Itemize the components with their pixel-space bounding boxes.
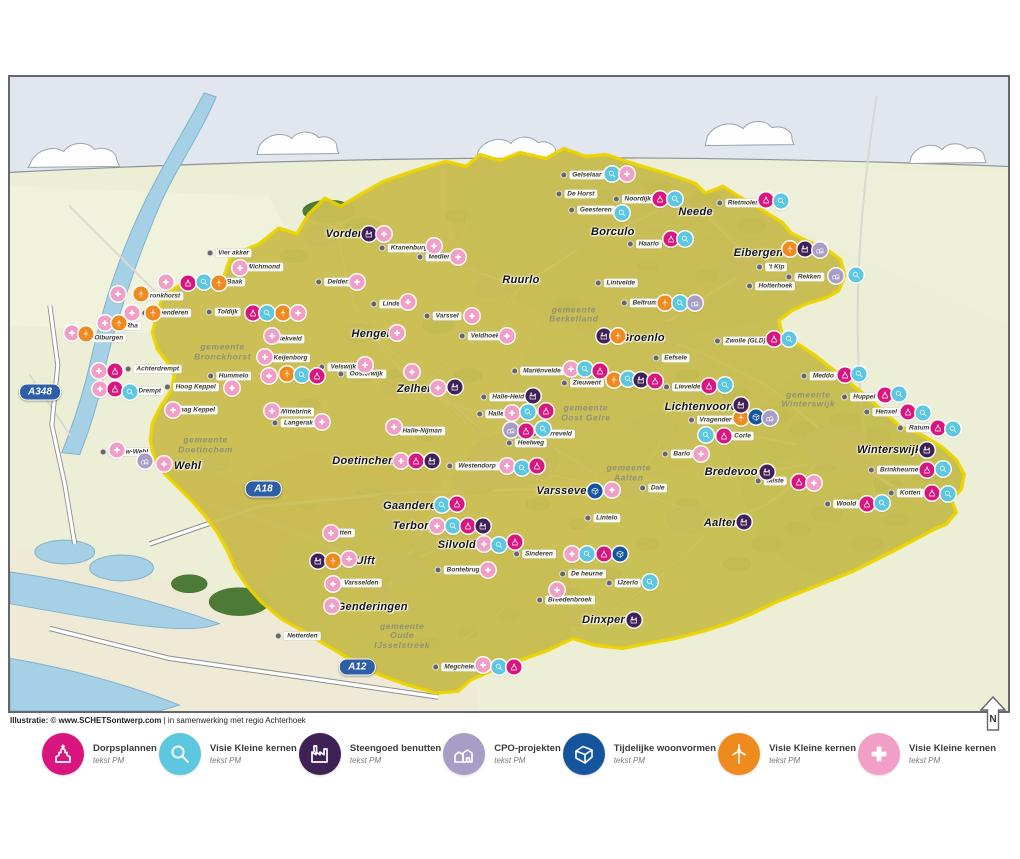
project-marker-church <box>920 463 935 478</box>
town-label-zwolle-gld: Zwolle (GLD) <box>722 336 768 345</box>
turbine-icon <box>329 556 338 565</box>
cross-icon <box>397 457 406 466</box>
cross-icon <box>328 601 337 610</box>
factory-icon <box>739 518 748 527</box>
town-label-keijenborg: Keijenborg <box>270 354 310 363</box>
container-icon <box>590 487 599 496</box>
legend-text: Visie Kleine kernentekst PM <box>210 743 297 765</box>
town-label-rietmolen: Rietmolen <box>725 198 762 207</box>
project-marker-cross <box>350 274 365 289</box>
town-label-baak: Baak <box>224 277 246 286</box>
magnifier-icon <box>438 500 447 509</box>
cross-icon <box>696 450 705 459</box>
town-label-breedenbroek: Breedenbroek <box>545 596 595 605</box>
project-marker-cross <box>431 381 446 396</box>
project-marker-magnifier <box>492 537 507 552</box>
project-marker-factory <box>736 515 751 530</box>
project-marker-turbine <box>145 305 160 320</box>
gemeente-label-gemeente-bronckhorst: gemeenteBronckhorst <box>194 343 251 362</box>
cross-icon <box>507 409 516 418</box>
project-marker-church <box>663 232 678 247</box>
turbine-icon <box>660 298 669 307</box>
cross-icon <box>100 318 109 327</box>
magnifier-icon <box>495 662 504 671</box>
city-label-neede: Neede <box>678 206 713 218</box>
project-marker-cross <box>807 476 822 491</box>
project-marker-turbine <box>326 553 341 568</box>
city-label-ulft: Ulft <box>356 555 376 567</box>
church-icon <box>248 308 257 317</box>
church-icon <box>412 456 421 465</box>
project-marker-cross <box>500 328 515 343</box>
magnifier-icon <box>720 381 729 390</box>
project-marker-cross <box>504 406 519 421</box>
project-marker-cross <box>693 447 708 462</box>
magnifier-icon <box>582 549 591 558</box>
magnifier-icon <box>623 375 632 384</box>
factory-icon <box>923 445 932 454</box>
project-marker-church <box>759 192 774 207</box>
project-marker-church <box>245 305 260 320</box>
cross-icon <box>127 308 136 317</box>
church-icon <box>521 426 530 435</box>
gemeente-label-gemeente-oude-ijsselstreek: gemeenteOudeIJsselstreek <box>374 621 430 650</box>
project-marker-magnifier <box>849 268 864 283</box>
factory-icon <box>479 521 488 530</box>
legend-sub: tekst PM <box>494 756 561 765</box>
highway-shield-a12: A12 <box>339 659 375 676</box>
magnifier-icon <box>680 234 689 243</box>
legend-magnifier-badge <box>159 733 201 775</box>
factory-icon <box>528 391 537 400</box>
project-marker-church <box>647 374 662 389</box>
project-marker-factory <box>733 397 748 412</box>
city-label-wehl: Wehl <box>174 460 201 472</box>
project-marker-turbine <box>783 242 798 257</box>
project-marker-magnifier <box>604 167 619 182</box>
town-label-henxel: Henxel <box>873 407 900 416</box>
project-marker-cross <box>315 414 330 429</box>
project-marker-magnifier <box>579 546 594 561</box>
town-label-t-kip: 't Kip <box>765 263 787 272</box>
magnifier-icon <box>517 463 526 472</box>
turbine-icon <box>114 318 123 327</box>
legend-factory-badge <box>299 733 341 775</box>
legend-text: CPO-projektentekst PM <box>494 743 561 765</box>
project-marker-cross <box>405 365 420 380</box>
houses-icon <box>832 272 841 281</box>
project-marker-houses <box>763 411 778 426</box>
north-arrow: N <box>980 696 1006 732</box>
church-icon <box>719 431 728 440</box>
cross-icon <box>390 422 399 431</box>
project-marker-factory <box>425 453 440 468</box>
project-marker-cross <box>563 362 578 377</box>
turbine-icon <box>736 414 745 423</box>
project-marker-magnifier <box>642 575 657 590</box>
project-marker-church <box>180 276 195 291</box>
project-marker-magnifier <box>717 378 732 393</box>
project-marker-church <box>792 475 807 490</box>
church-icon <box>453 499 462 508</box>
legend-label: Tijdelijke woonvormen <box>614 743 716 754</box>
town-label-westendorp: Westendorp <box>455 462 498 471</box>
project-marker-turbine <box>657 295 672 310</box>
magnifier-icon <box>701 430 710 439</box>
project-marker-container <box>587 484 602 499</box>
town-label-hummelo: Hummelo <box>216 372 252 381</box>
project-marker-church <box>860 496 875 511</box>
cross-icon <box>552 585 561 594</box>
project-marker-church <box>878 388 893 403</box>
project-marker-cross <box>358 358 373 373</box>
project-marker-turbine <box>211 276 226 291</box>
project-marker-factory <box>626 612 641 627</box>
city-label-vorden: Vorden <box>326 228 365 240</box>
church-icon <box>655 194 664 203</box>
gemeente-label-gemeente-berkelland: gemeenteBerkelland <box>549 305 598 324</box>
legend-label: Visie Kleine kernen <box>909 743 996 754</box>
town-label-halle-heide: Halle-Heide <box>489 393 530 402</box>
town-label-gelselaar: Gelselaar <box>569 171 604 180</box>
legend-sub: tekst PM <box>909 756 996 765</box>
church-icon <box>541 407 550 416</box>
cross-icon <box>607 486 616 495</box>
project-marker-magnifier <box>435 497 450 512</box>
magnifier-icon <box>168 742 192 766</box>
magnifier-icon <box>580 365 589 374</box>
gemeente-label-gemeente-doetinchem: gemeenteDoetinchem <box>178 436 233 455</box>
project-marker-magnifier <box>260 305 275 320</box>
cross-icon <box>622 170 631 179</box>
project-marker-magnifier <box>774 193 789 208</box>
church-icon <box>532 462 541 471</box>
project-marker-cross <box>326 577 341 592</box>
project-marker-church <box>596 546 611 561</box>
highway-shield-a18: A18 <box>245 481 281 498</box>
project-marker-magnifier <box>941 487 956 502</box>
magnifier-icon <box>617 208 626 217</box>
legend-item-steengoed-benutten-2: Steengoed benuttentekst PM <box>299 733 441 775</box>
legend-item-visie-kleine-kernen-6: Visie Kleine kernentekst PM <box>858 733 996 775</box>
map-frame: gemeenteBronckhorstgemeenteDoetinchemgem… <box>8 75 1010 713</box>
city-label-ruurlo: Ruurlo <box>502 274 539 286</box>
church-icon <box>795 478 804 487</box>
town-label-meddo: Meddo <box>810 372 837 381</box>
town-label-corle: Corle <box>731 431 754 440</box>
project-marker-cross <box>604 483 619 498</box>
legend-text: Dorpsplannentekst PM <box>93 743 157 765</box>
town-label-ijzerlo: IJzerlo <box>614 578 641 587</box>
cross-icon <box>294 309 303 318</box>
magnifier-icon <box>199 277 208 286</box>
project-marker-cross <box>325 598 340 613</box>
cross-icon <box>345 555 354 564</box>
city-label-bredevoort: Bredevoort <box>705 466 767 478</box>
project-marker-houses <box>687 295 702 310</box>
town-label-linde: Linde <box>380 299 403 308</box>
town-label-varsselden: Varsselden <box>341 578 381 587</box>
church-icon <box>863 499 872 508</box>
city-label-borculo: Borculo <box>591 226 635 238</box>
magnifier-icon <box>939 465 948 474</box>
legend-sub: tekst PM <box>350 756 441 765</box>
cross-icon <box>503 331 512 340</box>
cross-icon <box>380 230 389 239</box>
project-marker-magnifier <box>936 462 951 477</box>
cross-icon <box>95 384 104 393</box>
project-marker-magnifier <box>196 274 211 289</box>
project-marker-cross <box>377 227 392 242</box>
legend-text: Visie Kleine kernentekst PM <box>909 743 996 765</box>
houses-icon <box>816 246 825 255</box>
town-label-ratum: Ratum <box>906 423 932 432</box>
project-marker-magnifier <box>946 421 961 436</box>
legend-sub: tekst PM <box>769 756 856 765</box>
project-marker-factory <box>760 464 775 479</box>
town-label-halle-nijman: Halle-Nijman <box>399 427 444 436</box>
town-label-rekken: Rekken <box>795 273 824 282</box>
church-icon <box>51 742 75 766</box>
magnifier-icon <box>785 335 794 344</box>
legend-sub: tekst PM <box>210 756 297 765</box>
legend-label: CPO-projekten <box>494 743 561 754</box>
project-marker-magnifier <box>514 460 529 475</box>
cross-icon <box>353 277 362 286</box>
church-icon <box>928 488 937 497</box>
town-label-veldhoek: Veldhoek <box>468 331 503 340</box>
project-marker-turbine <box>78 326 93 341</box>
church-icon <box>183 279 192 288</box>
cross-icon <box>261 353 270 362</box>
gemeente-label-gemeente-winterswijk: gemeenteWinterswijk <box>782 390 836 409</box>
project-marker-cross <box>390 325 405 340</box>
town-label-langerak: Langerak <box>281 418 316 427</box>
cross-icon <box>94 366 103 375</box>
magnifier-icon <box>919 409 928 418</box>
project-marker-turbine <box>733 411 748 426</box>
legend-turbine-badge <box>718 733 760 775</box>
turbine-icon <box>609 376 618 385</box>
factory-icon <box>314 556 323 565</box>
project-marker-magnifier <box>446 518 461 533</box>
project-marker-cross <box>262 369 277 384</box>
legend: Dorpsplannentekst PMVisie Kleine kernent… <box>0 733 1020 775</box>
project-marker-cross <box>124 305 139 320</box>
town-label-achterdrempt: Achterdrempt <box>133 365 182 374</box>
magnifier-icon <box>944 490 953 499</box>
project-marker-church <box>701 379 716 394</box>
cross-icon <box>168 405 177 414</box>
magnifier-icon <box>878 499 887 508</box>
town-label-haarlo: Haarlo <box>636 239 662 248</box>
legend-text: Tijdelijke woonvormentekst PM <box>614 743 716 765</box>
church-icon <box>313 372 322 381</box>
project-marker-cross <box>97 315 112 330</box>
cross-icon <box>329 580 338 589</box>
factory-icon <box>629 615 638 624</box>
town-label-mari-nvelde: Mariënvelde <box>520 367 564 376</box>
project-marker-church <box>506 660 521 675</box>
project-marker-church <box>652 191 667 206</box>
legend-sub: tekst PM <box>614 756 716 765</box>
magnifier-icon <box>298 370 307 379</box>
town-label-kranenburg: Kranenburg <box>388 244 431 253</box>
project-marker-church <box>518 423 533 438</box>
project-marker-cross <box>258 350 273 365</box>
project-marker-cross <box>430 518 445 533</box>
magnifier-icon <box>670 194 679 203</box>
project-marker-church <box>529 459 544 474</box>
legend-container-badge <box>563 733 605 775</box>
cross-icon <box>484 566 493 575</box>
town-label-zieuwent: Zieuwent <box>570 379 604 388</box>
legend-houses-badge <box>443 733 485 775</box>
town-label-de-horst: De Horst <box>564 189 597 198</box>
cross-icon <box>235 264 244 273</box>
magnifier-icon <box>949 424 958 433</box>
town-label-hoog-keppel: Hoog Keppel <box>173 383 219 392</box>
town-label-bronkhorst: Bronkhorst <box>142 291 183 300</box>
project-marker-magnifier <box>875 496 890 511</box>
project-marker-cross <box>224 381 239 396</box>
town-label-vier-akker: Vier akker <box>215 249 252 258</box>
turbine-icon <box>214 279 223 288</box>
cross-icon <box>161 277 170 286</box>
project-marker-church <box>925 485 940 500</box>
factory-icon <box>365 229 374 238</box>
church-icon <box>704 382 713 391</box>
church-icon <box>923 466 932 475</box>
houses-icon <box>506 425 515 434</box>
magnifier-icon <box>777 196 786 205</box>
church-icon <box>904 407 913 416</box>
attribution: Illustratie: © www.SCHETSontwerp.com | i… <box>10 716 306 725</box>
turbine-icon <box>727 742 751 766</box>
project-marker-cross <box>427 238 442 253</box>
project-marker-magnifier <box>782 332 797 347</box>
project-marker-magnifier <box>852 367 867 382</box>
project-marker-church <box>409 453 424 468</box>
turbine-icon <box>786 245 795 254</box>
project-marker-turbine <box>276 305 291 320</box>
church-icon <box>599 549 608 558</box>
cross-icon <box>318 417 327 426</box>
church-icon <box>510 538 519 547</box>
legend-text: Visie Kleine kernentekst PM <box>769 743 856 765</box>
project-marker-magnifier <box>892 387 907 402</box>
project-marker-container <box>612 546 627 561</box>
project-marker-factory <box>311 553 326 568</box>
project-marker-magnifier <box>667 191 682 206</box>
cross-icon <box>454 253 463 262</box>
turbine-icon <box>81 329 90 338</box>
factory-icon <box>451 383 460 392</box>
legend-item-dorpsplannen-0: Dorpsplannentekst PM <box>42 733 157 775</box>
magnifier-icon <box>852 271 861 280</box>
town-label-barlo: Barlo <box>670 450 693 459</box>
legend-church-badge <box>42 733 84 775</box>
city-label-doetinchem: Doetinchem <box>332 455 398 467</box>
legend-item-tijdelijke-woonvormen-4: Tijdelijke woonvormentekst PM <box>563 733 716 775</box>
attribution-source: Illustratie: © www.SCHETSontwerp.com <box>10 716 161 725</box>
project-marker-turbine <box>111 315 126 330</box>
church-icon <box>595 366 604 375</box>
project-marker-magnifier <box>698 427 713 442</box>
page: { "map": { "attribution_bold": "Illustra… <box>0 0 1020 859</box>
project-marker-cross <box>91 363 106 378</box>
project-marker-factory <box>362 226 377 241</box>
cross-icon <box>433 521 442 530</box>
cross-icon <box>265 372 274 381</box>
factory-icon <box>801 245 810 254</box>
project-marker-magnifier <box>520 404 535 419</box>
project-marker-magnifier <box>295 367 310 382</box>
project-marker-houses <box>137 454 152 469</box>
factory-icon <box>736 400 745 409</box>
project-marker-cross <box>549 582 564 597</box>
town-label-medler: Medler <box>426 253 453 262</box>
turbine-icon <box>279 308 288 317</box>
project-marker-church <box>107 381 122 396</box>
turbine-icon <box>148 308 157 317</box>
project-marker-cross <box>500 459 515 474</box>
project-marker-factory <box>476 518 491 533</box>
town-label-netterden: Netterden <box>284 631 320 640</box>
magnifier-icon <box>607 170 616 179</box>
legend-cross-badge <box>858 733 900 775</box>
town-label-beltrum: Beltrum <box>629 298 660 307</box>
factory-icon <box>308 742 332 766</box>
cross-icon <box>113 289 122 298</box>
church-icon <box>110 366 119 375</box>
cross-icon <box>566 365 575 374</box>
cross-icon <box>480 539 489 548</box>
church-icon <box>509 663 518 672</box>
project-marker-cross <box>387 419 402 434</box>
project-marker-cross <box>401 295 416 310</box>
project-marker-church <box>310 369 325 384</box>
project-marker-factory <box>448 380 463 395</box>
container-icon <box>615 549 624 558</box>
legend-sub: tekst PM <box>93 756 157 765</box>
cross-icon <box>404 298 413 307</box>
project-marker-cross <box>92 381 107 396</box>
project-marker-church <box>538 404 553 419</box>
magnifier-icon <box>495 540 504 549</box>
legend-label: Steengoed benutten <box>350 743 441 754</box>
project-marker-cross <box>265 329 280 344</box>
cross-icon <box>361 361 370 370</box>
project-marker-cross <box>394 454 409 469</box>
project-marker-turbine <box>606 373 621 388</box>
magnifier-icon <box>645 578 654 587</box>
project-marker-factory <box>920 442 935 457</box>
project-marker-houses <box>503 422 518 437</box>
town-label-heelweg: Heelweg <box>515 439 547 448</box>
map-overlay: gemeenteBronckhorstgemeenteDoetinchemgem… <box>10 77 1008 711</box>
project-marker-factory <box>798 242 813 257</box>
cross-icon <box>567 549 576 558</box>
church-icon <box>934 423 943 432</box>
church-icon <box>770 335 779 344</box>
magnifier-icon <box>895 390 904 399</box>
church-icon <box>841 370 850 379</box>
town-label-geesteren: Geesteren <box>577 205 615 214</box>
church-icon <box>762 195 771 204</box>
factory-icon <box>636 376 645 385</box>
factory-icon <box>763 467 772 476</box>
